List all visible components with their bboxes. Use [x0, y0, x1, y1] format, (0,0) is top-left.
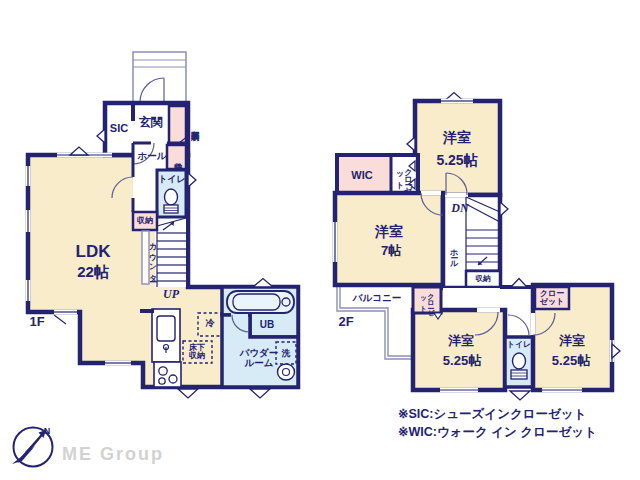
label-wic: WIC: [351, 170, 372, 182]
kitchen-sink-unit: [152, 309, 180, 362]
label-room-west-size: 7帖: [381, 244, 401, 258]
label-room-middle-name: 洋室: [448, 334, 474, 348]
stove-icon: [154, 362, 181, 387]
porch: [133, 52, 186, 103]
note-sic: ※SIC:シューズインクローゼット: [398, 406, 586, 423]
floorplan-image: 玄関 SIC 玄関収納 ホール 収納 トイレ 収納 カウンター UP LDK 2…: [0, 0, 640, 480]
label-storage-upper: 収納: [173, 156, 181, 158]
hall-door-marker: [500, 202, 508, 216]
compass-n-label: N: [44, 427, 51, 436]
label-room-west-name: 洋室: [375, 224, 403, 239]
sic-door-marker: [97, 129, 105, 143]
label-floor2: 2F: [338, 315, 353, 329]
bathtub-icon: [227, 291, 294, 313]
company-logo-text: ME Group: [62, 444, 164, 465]
label-closet-b: クローゼット: [420, 288, 435, 312]
label-room-east-size: 5.25帖: [552, 354, 590, 368]
label-fridge: 冷: [206, 319, 215, 328]
label-balcony: バルコニー: [353, 293, 401, 303]
toilet-icon-2f: [511, 353, 527, 379]
room-west: [335, 193, 443, 285]
label-toilet-2f: トイレ: [507, 341, 532, 349]
room-east-door-marker: [612, 344, 620, 358]
label-floor1: 1F: [29, 315, 44, 329]
label-powder-room: パウダールーム: [236, 348, 282, 368]
note-wic: ※WIC:ウォーク イン クローゼット: [398, 424, 597, 441]
label-unit-bath: UB: [260, 320, 274, 331]
label-storage-2f: 収納: [476, 275, 491, 283]
label-room-east-name: 洋室: [559, 334, 585, 348]
label-sic: SIC: [110, 123, 128, 135]
bath-vent-marker: [253, 279, 273, 288]
room-top-door-marker: [407, 137, 415, 151]
label-hall-2f: ホール: [449, 243, 457, 264]
label-ldk-size: 22帖: [77, 264, 109, 280]
label-underfloor-storage: 床下収納: [186, 344, 208, 361]
label-room-top-size: 5.25帖: [436, 153, 477, 168]
label-storage-lower: 収納: [137, 217, 153, 225]
toilet1-door-marker: [188, 173, 196, 187]
label-closet-c: クローゼット: [537, 290, 567, 307]
label-closet-a: クローゼット: [395, 159, 412, 193]
label-entrance: 玄関: [139, 116, 163, 129]
label-stairs-down: DN: [451, 202, 468, 215]
label-counter: カウンター: [148, 237, 156, 278]
label-room-middle-size: 5.25帖: [443, 354, 481, 368]
label-stairs-up: UP: [163, 288, 179, 301]
label-entrance-storage: 玄関収納: [190, 124, 198, 128]
label-washer: 洗: [282, 349, 291, 358]
toilet-icon: [164, 189, 178, 213]
room-middle: [413, 310, 505, 390]
label-room-top-name: 洋室: [443, 130, 471, 145]
label-toilet-1f: トイレ: [158, 175, 186, 184]
label-hall-1f: ホール: [138, 151, 167, 161]
label-ldk-name: LDK: [76, 243, 111, 261]
room-top: [415, 101, 500, 195]
